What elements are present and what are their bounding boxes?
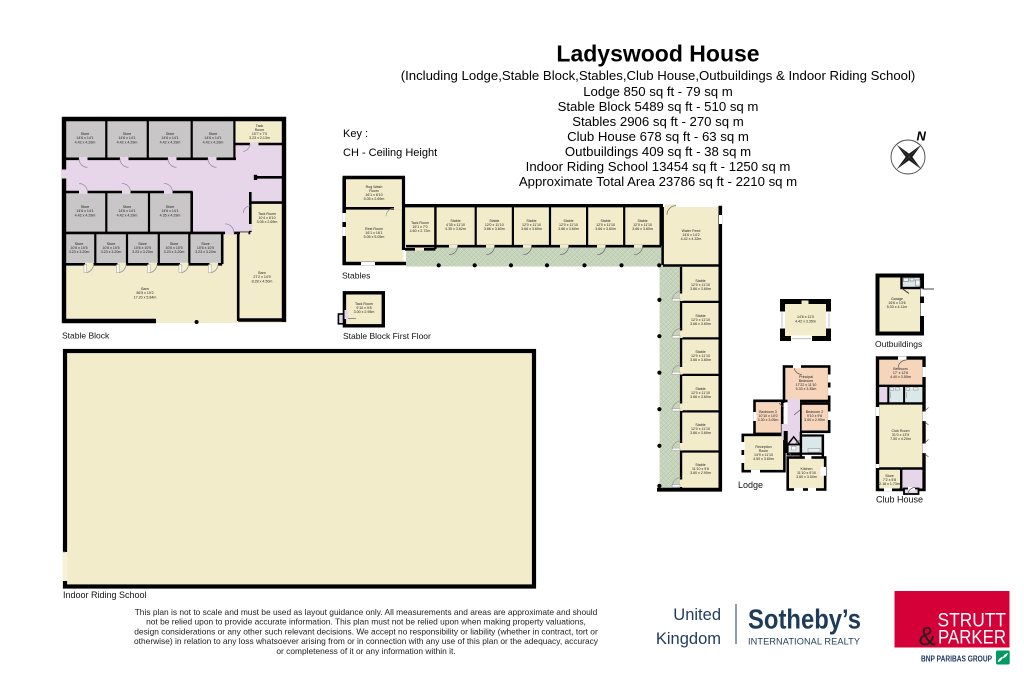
svg-text:(Including Lodge,Stable Block,: (Including Lodge,Stable Block,Stables,Cl… [401,68,916,83]
svg-text:Water Feed14'6 x 14'24.42 x 4.: Water Feed14'6 x 14'24.42 x 4.32m [681,229,702,241]
svg-text:Outbuildings: Outbuildings [875,339,922,349]
svg-text:Lodge: Lodge [738,480,763,490]
svg-text:Stable Block 5489 sq ft - 510: Stable Block 5489 sq ft - 510 sq m [558,99,759,114]
svg-text:Rest Room16'1 x 16'15.05 x 5.0: Rest Room16'1 x 16'15.05 x 5.05m [364,227,385,239]
svg-text:not be relied upon to provide: not be relied upon to provide accurate i… [146,617,586,627]
svg-text:CH - Ceiling Height: CH - Ceiling Height [343,147,437,159]
svg-text:PARKER: PARKER [938,628,1006,649]
svg-text:Approximate Total Area 23786 s: Approximate Total Area 23786 sq ft - 221… [519,174,797,189]
svg-text:Lodge 850 sq ft - 79 sq m: Lodge 850 sq ft - 79 sq m [583,84,733,99]
svg-text:ReceptionRoom14'9 x 11'104.50: ReceptionRoom14'9 x 11'104.50 x 3.60m [753,445,774,461]
svg-text:BNP PARIBAS GROUP: BNP PARIBAS GROUP [921,655,993,664]
svg-text:Indoor Riding School: Indoor Riding School [63,590,147,600]
svg-text:design considerations or any o: design considerations or any other such … [134,626,598,636]
svg-text:N: N [917,129,927,144]
svg-text:This plan is not to scale and: This plan is not to scale and must be us… [135,607,598,617]
svg-text:Key :: Key : [343,128,368,140]
svg-text:Tack Room15'1 x 7'04.60 x 2.72: Tack Room15'1 x 7'04.60 x 2.72m [410,221,431,233]
svg-text:Stables 2906 sq ft - 270 sq m: Stables 2906 sq ft - 270 sq m [572,114,744,129]
svg-text:Bedroom 310'10 x 10'03.30 x 3.: Bedroom 310'10 x 10'03.30 x 3.05m [758,410,779,422]
svg-text:Rug WashRoom16'1 x 8'105.05 x: Rug WashRoom16'1 x 8'105.05 x 2.69m [364,185,385,201]
svg-text:Outbuildings 409 sq ft - 38 sq: Outbuildings 409 sq ft - 38 sq m [565,144,751,159]
svg-text:Bedroom 29'10 x 9'63.00 x 2.90: Bedroom 29'10 x 9'63.00 x 2.90m [804,410,825,422]
svg-text:INTERNATIONAL REALTY: INTERNATIONAL REALTY [748,637,860,647]
svg-text:Kingdom: Kingdom [656,630,721,648]
svg-text:Tack Room10'4 x 8'103.05 x 2.6: Tack Room10'4 x 8'103.05 x 2.69m [257,212,278,224]
svg-text:Stable Block: Stable Block [62,331,110,341]
svg-text:Stable Block First Floor: Stable Block First Floor [343,331,431,341]
svg-text:United: United [673,606,721,624]
svg-text:Stables: Stables [342,271,370,281]
svg-text:Club House 678 sq ft - 63 sq m: Club House 678 sq ft - 63 sq m [567,129,749,144]
svg-text:otherwise) in relation to any: otherwise) in relation to any loss whats… [134,636,599,646]
svg-text:Club House: Club House [876,495,923,505]
svg-text:Tack Room9'10 x 9'83.00 x 2.95: Tack Room9'10 x 9'83.00 x 2.95m [354,302,375,314]
svg-text:Club Room31'0 x 13'97.50 x 4.2: Club Room31'0 x 13'97.50 x 4.20m [890,429,911,441]
svg-text:&: & [919,621,936,651]
svg-text:Ladyswood House: Ladyswood House [556,41,759,67]
svg-text:Sotheby’s: Sotheby’s [748,604,861,635]
svg-text:Indoor Riding School 13454 sq: Indoor Riding School 13454 sq ft - 1250 … [526,159,791,174]
svg-text:or completeness of it or any i: or completeness of it or any information… [276,646,455,656]
svg-text:Bedroom17' x 12'64.40 x 3.50m: Bedroom17' x 12'64.40 x 3.50m [890,367,911,379]
svg-text:14'6 x 11'04.42 x 3.35m: 14'6 x 11'04.42 x 3.35m [795,315,816,323]
